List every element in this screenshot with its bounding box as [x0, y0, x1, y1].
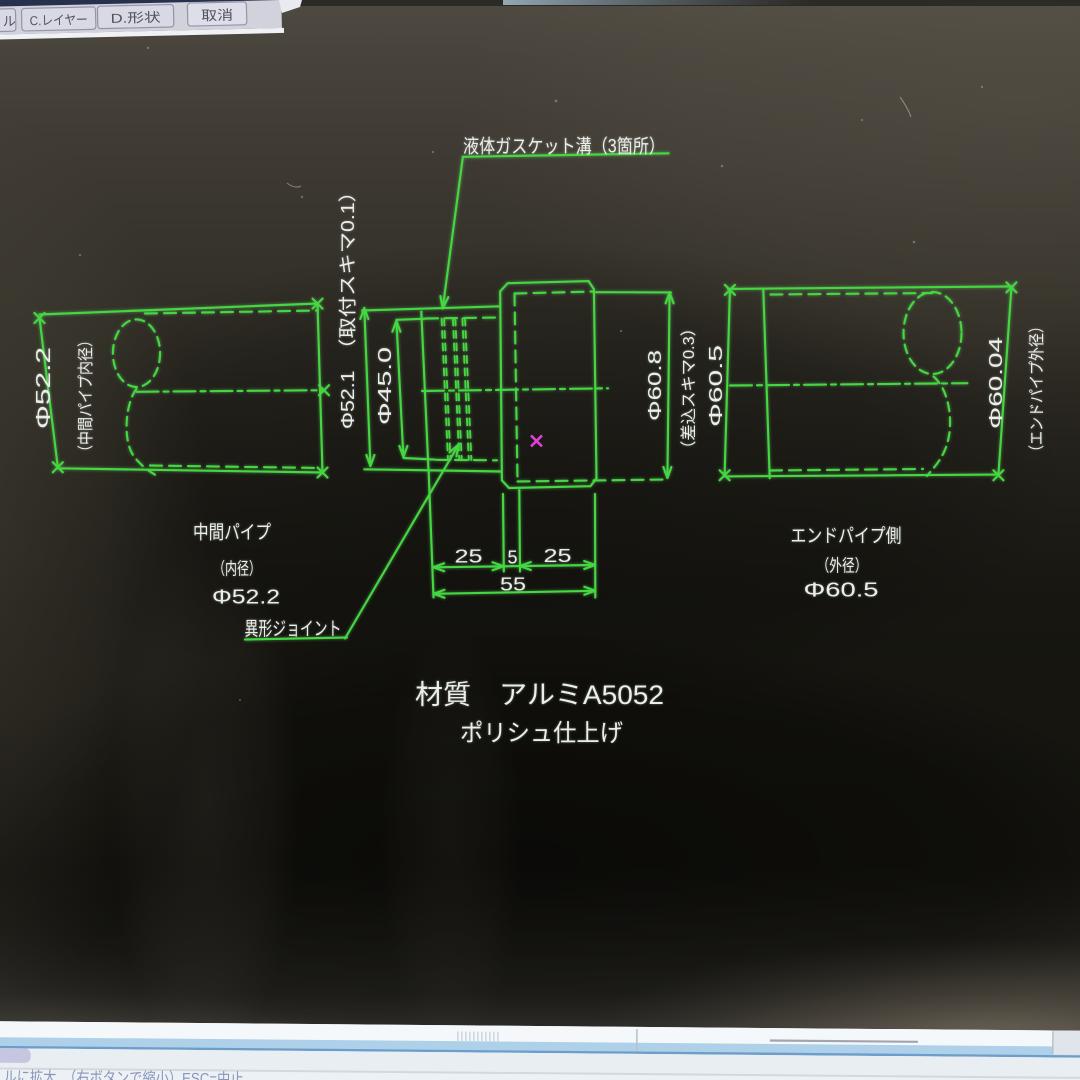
svg-text:（差込スキマ0.3）: （差込スキマ0.3） [680, 320, 698, 457]
svg-text:取消: 取消 [201, 8, 233, 24]
svg-text:中間パイプ: 中間パイプ [193, 522, 271, 544]
svg-text:材質 アルミA5052: 材質 アルミA5052 [415, 680, 664, 710]
svg-text:25: 25 [544, 546, 572, 566]
svg-text:Φ45.0: Φ45.0 [375, 347, 395, 425]
svg-text:Φ60.5: Φ60.5 [706, 345, 726, 427]
svg-text:（中間パイプ内径）: （中間パイプ内径） [77, 333, 95, 459]
svg-text:（外径）: （外径） [817, 557, 868, 576]
svg-text:ル: ル [3, 14, 16, 29]
svg-text:異形ジョイント: 異形ジョイント [245, 618, 342, 640]
svg-text:Φ52.2: Φ52.2 [212, 587, 280, 609]
svg-text:D.形状: D.形状 [110, 10, 160, 26]
svg-text:Φ60.8: Φ60.8 [645, 350, 665, 421]
svg-text:Φ52.1 （取付スキマ0.1）: Φ52.1 （取付スキマ0.1） [338, 181, 358, 429]
svg-text:Φ52.2: Φ52.2 [33, 347, 55, 429]
svg-text:Φ60.5: Φ60.5 [804, 580, 879, 602]
svg-text:液体ガスケット溝（3箇所）: 液体ガスケット溝（3箇所） [463, 136, 665, 158]
svg-text:55: 55 [500, 575, 526, 595]
svg-text:5: 5 [507, 548, 517, 568]
svg-text:（エンドパイプ外径）: （エンドパイプ外径） [1028, 319, 1046, 459]
svg-text:ポリシュ仕上げ: ポリシュ仕上げ [460, 720, 623, 747]
svg-text:25: 25 [455, 547, 483, 567]
svg-text:C.レイヤー: C.レイヤー [30, 12, 88, 28]
svg-text:エンドパイプ側: エンドパイプ側 [791, 525, 902, 547]
svg-text:（内径）: （内径） [213, 560, 261, 579]
svg-text:Φ60.04: Φ60.04 [986, 337, 1006, 429]
